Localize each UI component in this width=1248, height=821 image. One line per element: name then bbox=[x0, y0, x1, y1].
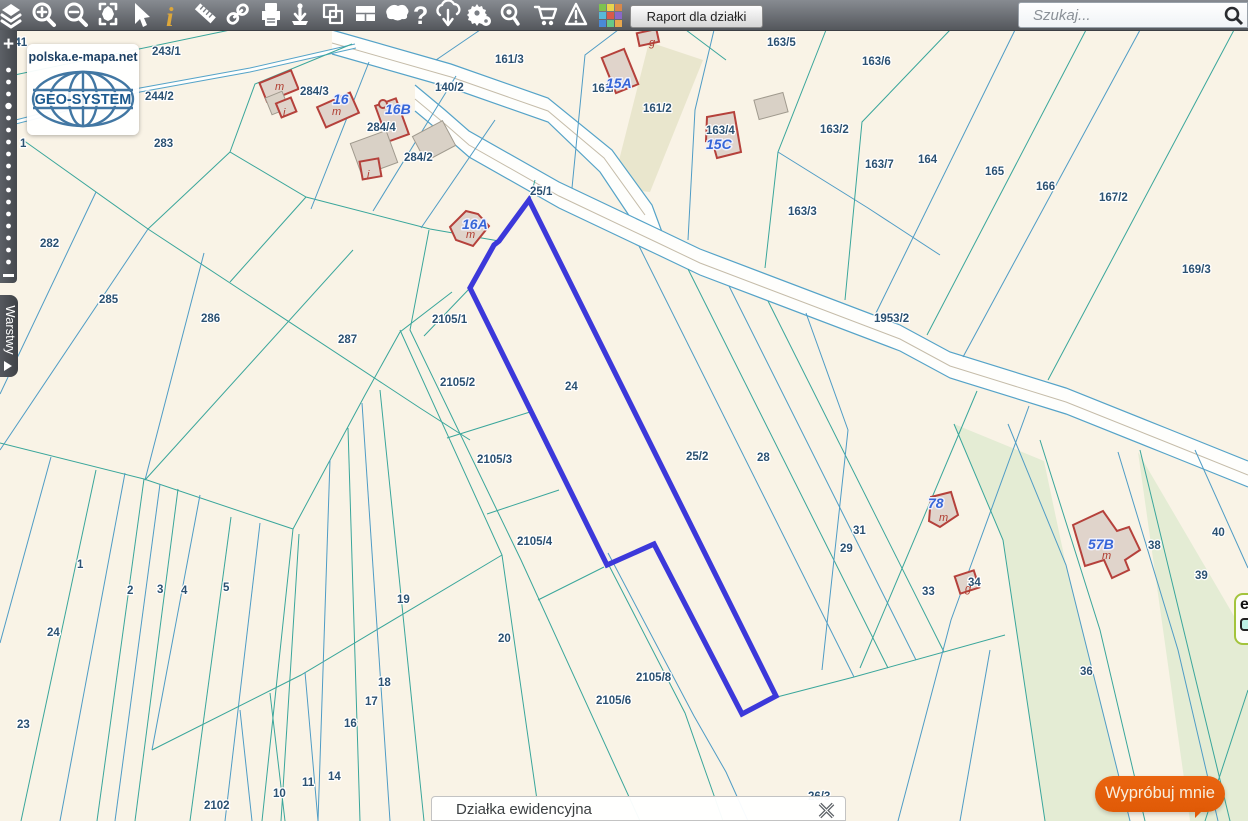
svg-text:28: 28 bbox=[757, 452, 770, 464]
svg-text:40: 40 bbox=[1212, 527, 1225, 539]
svg-text:g: g bbox=[965, 583, 972, 595]
svg-text:i: i bbox=[166, 2, 174, 30]
svg-text:163/2: 163/2 bbox=[820, 124, 849, 136]
svg-text:164: 164 bbox=[918, 154, 938, 166]
svg-text:m: m bbox=[466, 229, 475, 241]
svg-text:167/2: 167/2 bbox=[1099, 192, 1128, 204]
svg-text:2105/3: 2105/3 bbox=[477, 454, 512, 466]
svg-text:29: 29 bbox=[840, 543, 853, 555]
svg-text:16: 16 bbox=[344, 718, 357, 730]
svg-text:161/3: 161/3 bbox=[495, 54, 524, 66]
svg-text:15A: 15A bbox=[606, 75, 632, 91]
svg-text:169/3: 169/3 bbox=[1182, 264, 1211, 276]
svg-text:25/2: 25/2 bbox=[686, 451, 708, 463]
svg-text:16: 16 bbox=[333, 91, 349, 107]
svg-text:1: 1 bbox=[77, 559, 84, 571]
svg-text:33: 33 bbox=[922, 586, 935, 598]
svg-text:161/2: 161/2 bbox=[643, 103, 672, 115]
svg-text:11: 11 bbox=[302, 777, 315, 789]
svg-text:36: 36 bbox=[1080, 666, 1093, 678]
svg-text:2105/6: 2105/6 bbox=[596, 695, 631, 707]
svg-text:282: 282 bbox=[40, 238, 59, 250]
svg-text:140/2: 140/2 bbox=[435, 82, 464, 94]
svg-text:?: ? bbox=[413, 2, 428, 30]
svg-text:20: 20 bbox=[498, 633, 511, 645]
svg-text:m: m bbox=[1102, 550, 1111, 562]
svg-text:284/3: 284/3 bbox=[300, 86, 329, 98]
svg-text:16B: 16B bbox=[385, 101, 411, 117]
svg-text:g: g bbox=[649, 37, 656, 49]
svg-text:165: 165 bbox=[985, 166, 1005, 178]
svg-text:3: 3 bbox=[157, 584, 163, 596]
svg-text:163/6: 163/6 bbox=[862, 56, 891, 68]
svg-text:31: 31 bbox=[853, 525, 866, 537]
svg-text:166: 166 bbox=[1036, 181, 1055, 193]
svg-text:285: 285 bbox=[99, 294, 119, 306]
svg-text:287: 287 bbox=[338, 334, 357, 346]
svg-text:2102: 2102 bbox=[204, 800, 230, 812]
svg-text:2: 2 bbox=[127, 585, 133, 597]
svg-text:2105/4: 2105/4 bbox=[517, 536, 553, 548]
svg-text:18: 18 bbox=[378, 677, 391, 689]
svg-text:4: 4 bbox=[181, 585, 188, 597]
svg-text:243/1: 243/1 bbox=[152, 46, 181, 58]
svg-text:1: 1 bbox=[20, 138, 27, 150]
svg-text:m: m bbox=[275, 81, 284, 93]
svg-text:78: 78 bbox=[928, 495, 944, 511]
svg-text:244/2: 244/2 bbox=[145, 91, 174, 103]
svg-text:10: 10 bbox=[273, 788, 286, 800]
svg-text:163/7: 163/7 bbox=[865, 159, 894, 171]
svg-text:2105/1: 2105/1 bbox=[432, 314, 468, 326]
svg-text:39: 39 bbox=[1195, 570, 1208, 582]
svg-text:17: 17 bbox=[365, 696, 378, 708]
svg-text:284/2: 284/2 bbox=[404, 152, 433, 164]
svg-text:23: 23 bbox=[17, 719, 30, 731]
svg-text:m: m bbox=[332, 106, 341, 118]
svg-text:2105/2: 2105/2 bbox=[440, 377, 475, 389]
svg-text:m: m bbox=[939, 512, 948, 524]
svg-text:GEO-SYSTEM: GEO-SYSTEM bbox=[35, 92, 132, 108]
svg-text:286: 286 bbox=[201, 313, 220, 325]
svg-text:24: 24 bbox=[47, 627, 60, 639]
svg-text:15C: 15C bbox=[706, 136, 733, 152]
svg-text:24: 24 bbox=[565, 381, 578, 393]
svg-text:163/3: 163/3 bbox=[788, 206, 817, 218]
svg-text:2105/8: 2105/8 bbox=[636, 672, 672, 684]
svg-text:38: 38 bbox=[1148, 540, 1161, 552]
svg-text:5: 5 bbox=[223, 582, 230, 594]
svg-text:163/5: 163/5 bbox=[767, 37, 796, 49]
svg-text:283: 283 bbox=[154, 138, 173, 150]
svg-text:1953/2: 1953/2 bbox=[874, 313, 909, 325]
svg-text:25/1: 25/1 bbox=[530, 186, 553, 198]
svg-text:19: 19 bbox=[397, 594, 410, 606]
svg-text:284/4: 284/4 bbox=[367, 122, 396, 134]
svg-text:14: 14 bbox=[328, 771, 341, 783]
